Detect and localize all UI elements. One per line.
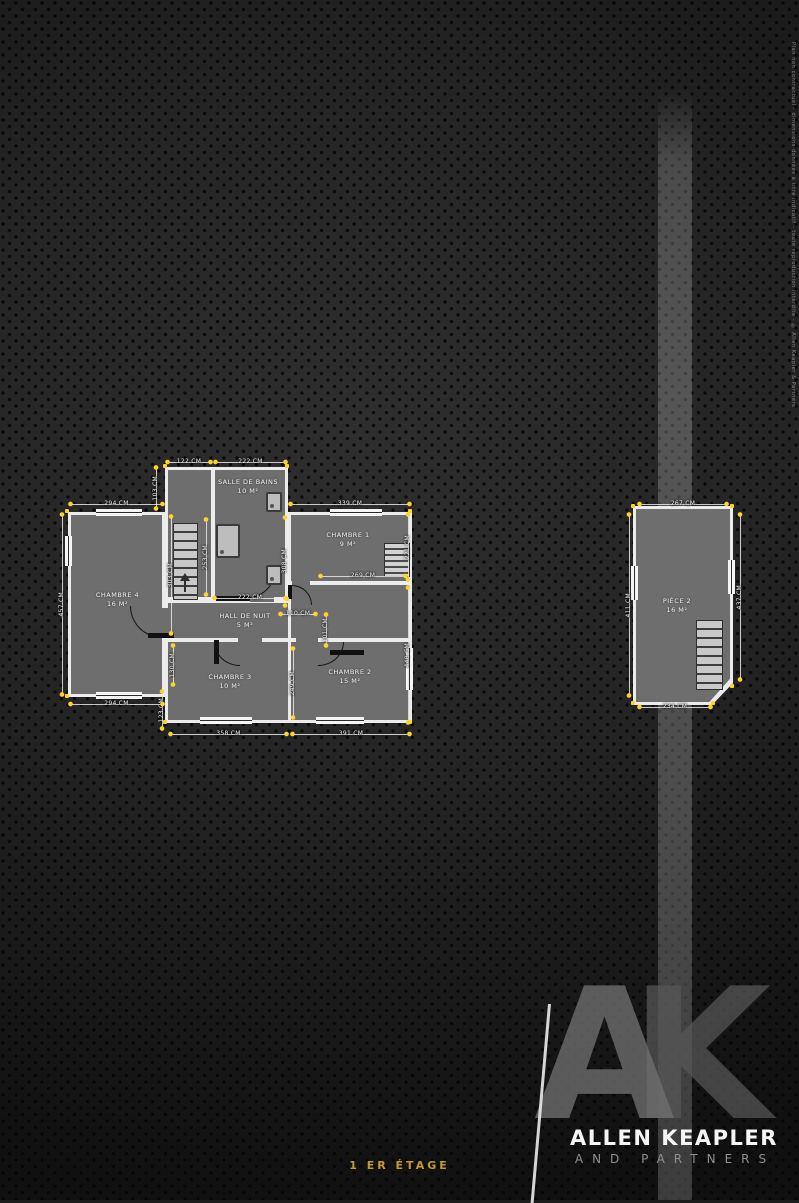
brand-subtitle: AND PARTNERS: [560, 1152, 790, 1166]
dimension-122: 122 CM: [165, 458, 213, 466]
corner-dot: [285, 464, 289, 468]
corner-dot: [408, 509, 412, 513]
window-chambre4-left: [65, 536, 72, 566]
room-area: 15 M²: [339, 678, 360, 685]
dimension-222-hall: 222 CM: [212, 594, 288, 602]
dimension-222-top: 222 CM: [213, 458, 288, 466]
room-name: HALL DE NUIT: [219, 613, 270, 620]
dimension-294-bottom: 294 CM: [68, 700, 165, 708]
room-label-salle-de-bains: SALLE DE BAINS 10 M²: [203, 479, 293, 494]
room-name: PIÈCE 2: [663, 598, 691, 605]
corner-dot: [631, 701, 635, 705]
dimension-448: 448 CM: [404, 585, 412, 725]
room-label-chambre-2: CHAMBRE 2 15 M²: [300, 669, 400, 684]
fine-print-disclaimer: Plan non contractuel - dimensions donnée…: [790, 42, 796, 537]
corner-dot: [711, 701, 715, 705]
corner-dot: [65, 694, 69, 698]
dimension-457: 457 CM: [58, 512, 66, 697]
room-name: CHAMBRE 3: [208, 674, 251, 681]
corner-dot: [163, 464, 167, 468]
corner-dot: [65, 509, 69, 513]
room-area: 9 M²: [340, 541, 356, 548]
dimension-101: 101 CM: [322, 612, 330, 648]
window-chambre1-top: [330, 509, 382, 516]
corner-dot: [408, 720, 412, 724]
dimension-294-top: 294 CM: [68, 500, 165, 508]
dimension-130: 130 CM: [169, 643, 177, 687]
dimension-123: 123 CM: [158, 689, 166, 731]
dimension-253: 253 CM: [202, 517, 210, 597]
window-chambre2-bottom: [316, 717, 364, 724]
dimension-358: 358 CM: [168, 730, 289, 738]
dimension-110: 110 CM: [278, 610, 318, 618]
room-name: CHAMBRE 1: [326, 532, 369, 539]
room-area: 10 M²: [237, 488, 258, 495]
corner-dot: [285, 597, 289, 601]
dimension-437: 437 CM: [736, 512, 744, 682]
room-label-chambre-3: CHAMBRE 3 10 M²: [185, 674, 275, 689]
room-area: 16 M²: [666, 607, 687, 614]
dimension-303: 303 CM: [167, 514, 175, 636]
logo-monogram-a: A: [534, 964, 675, 1146]
toilet-icon-2: [266, 565, 282, 585]
corner-dot: [631, 504, 635, 508]
dimension-249: 249 CM: [289, 646, 297, 720]
door-gap-chambre2: [296, 638, 318, 642]
dimension-103: 103 CM: [152, 465, 160, 511]
dimension-269: 269 CM: [318, 572, 408, 580]
dimension-234: 234 CM: [637, 703, 713, 711]
corner-dot: [730, 504, 734, 508]
room-area: 16 M²: [107, 601, 128, 608]
dimension-267: 267 CM: [637, 500, 729, 508]
wall-hall-bottom: [168, 638, 412, 642]
door-gap-chambre3: [238, 638, 262, 642]
annex-staircase: [696, 620, 723, 690]
room-label-hall-de-nuit: HALL DE NUIT 5 M²: [200, 613, 290, 628]
dimension-391: 391 CM: [290, 730, 412, 738]
room-name: CHAMBRE 4: [96, 592, 139, 599]
room-label-chambre-1: CHAMBRE 1 9 M²: [298, 532, 398, 547]
room-label-piece-2: PIÈCE 2 16 M²: [632, 598, 722, 613]
corner-dot: [730, 684, 734, 688]
room-name: SALLE DE BAINS: [218, 479, 278, 486]
toilet-icon: [266, 492, 282, 512]
window-chambre4-top: [96, 509, 142, 516]
room-area: 5 M²: [237, 622, 253, 629]
stair-direction-arrow: [180, 573, 190, 581]
window-chambre3-bottom: [200, 717, 252, 724]
corner-dot: [163, 720, 167, 724]
dimension-339: 339 CM: [288, 500, 412, 508]
shower-icon: [216, 524, 240, 558]
room-name: CHAMBRE 2: [328, 669, 371, 676]
brand-name: ALLEN KEAPLER: [556, 1126, 792, 1150]
window-chambre4-bottom: [96, 692, 142, 699]
dimension-411: 411 CM: [625, 512, 633, 698]
window-piece2-right: [728, 560, 735, 594]
room-label-chambre-4: CHAMBRE 4 16 M²: [70, 592, 165, 607]
room-area: 10 M²: [219, 683, 240, 690]
